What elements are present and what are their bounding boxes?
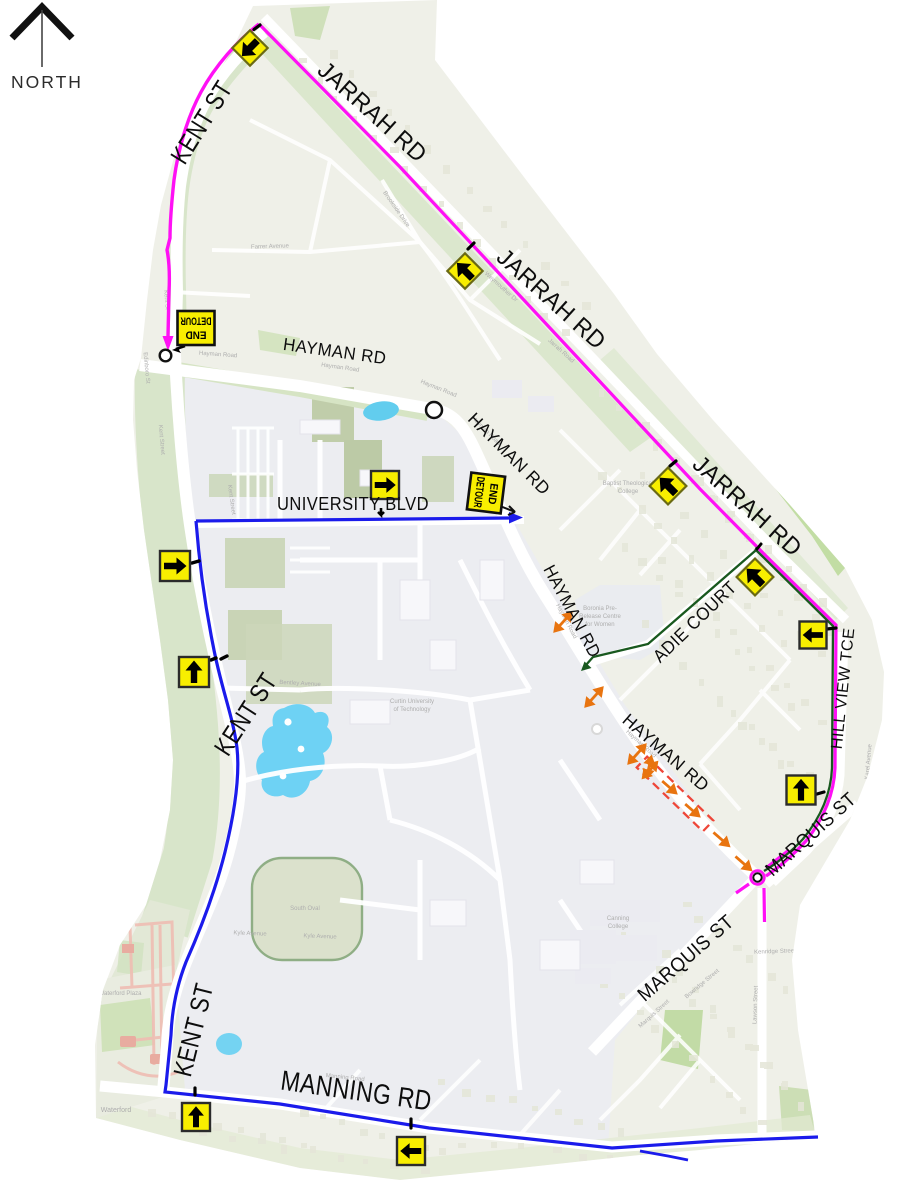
svg-text:DETOUR: DETOUR	[180, 315, 211, 327]
svg-text:Polytechnic: Polytechnic	[775, 401, 806, 407]
svg-text:Baptist Theological: Baptist Theological	[603, 481, 654, 487]
svg-text:UNIVERSITY BLVD: UNIVERSITY BLVD	[277, 493, 429, 514]
svg-text:Canning: Canning	[607, 916, 629, 922]
svg-text:South Oval: South Oval	[290, 906, 320, 912]
svg-text:College: College	[618, 489, 639, 495]
svg-text:END: END	[485, 483, 499, 505]
svg-text:West: West	[783, 409, 797, 415]
svg-text:Boronia Pre-: Boronia Pre-	[583, 606, 617, 612]
svg-text:Curtin University: Curtin University	[390, 699, 434, 705]
svg-text:Waterford: Waterford	[101, 1107, 132, 1114]
svg-text:END: END	[185, 329, 206, 341]
svg-text:College: College	[608, 924, 629, 930]
svg-text:Waterford Plaza: Waterford Plaza	[99, 991, 142, 997]
svg-text:Kyle Avenue: Kyle Avenue	[303, 933, 337, 940]
svg-text:Kyle Avenue: Kyle Avenue	[233, 930, 267, 937]
svg-text:Creaton Street: Creaton Street	[636, 294, 669, 325]
svg-text:NORTH: NORTH	[11, 72, 83, 92]
svg-text:of Technology: of Technology	[394, 707, 431, 713]
